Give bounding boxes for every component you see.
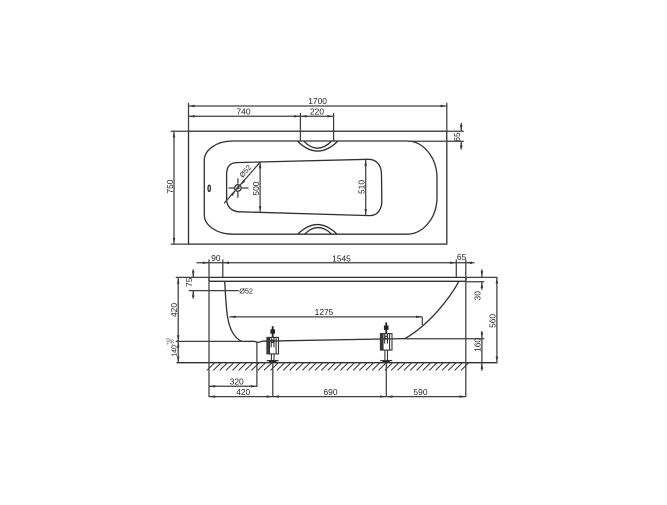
svg-text:690: 690 bbox=[324, 387, 338, 397]
svg-text:Ø52: Ø52 bbox=[239, 286, 253, 295]
svg-text:1700: 1700 bbox=[308, 96, 327, 106]
svg-text:1275: 1275 bbox=[315, 307, 334, 317]
svg-text:90: 90 bbox=[211, 253, 221, 263]
svg-text:510: 510 bbox=[356, 180, 366, 194]
svg-text:560: 560 bbox=[488, 314, 498, 328]
svg-text:500: 500 bbox=[251, 181, 261, 195]
svg-text:1545: 1545 bbox=[332, 253, 351, 263]
svg-text:65: 65 bbox=[457, 252, 467, 262]
svg-text:220: 220 bbox=[310, 106, 324, 116]
svg-text:320: 320 bbox=[230, 377, 244, 387]
svg-text:420: 420 bbox=[236, 387, 250, 397]
svg-text:30: 30 bbox=[473, 291, 483, 301]
svg-text:420: 420 bbox=[169, 303, 179, 317]
svg-text:75: 75 bbox=[184, 277, 194, 287]
svg-text:590: 590 bbox=[414, 387, 428, 397]
svg-text:750: 750 bbox=[165, 179, 175, 193]
svg-text:140+10-35: 140+10-35 bbox=[165, 337, 178, 356]
svg-text:Ø52: Ø52 bbox=[237, 163, 253, 179]
svg-text:65: 65 bbox=[452, 132, 462, 142]
svg-text:160: 160 bbox=[473, 338, 483, 352]
svg-text:740: 740 bbox=[237, 106, 251, 116]
